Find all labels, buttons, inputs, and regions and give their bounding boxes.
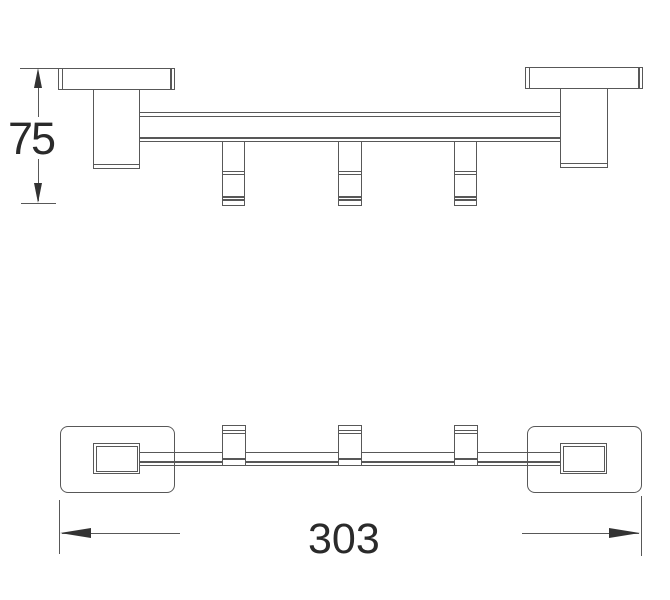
hook-band-line [223, 433, 245, 435]
front-hook-1 [222, 142, 246, 206]
plate-end-cap [529, 68, 531, 88]
rail-top-edge-line [139, 116, 561, 118]
hook-band-line [223, 430, 245, 432]
hook-band-line [455, 430, 477, 432]
dimension-arrow-up [34, 68, 42, 88]
hook-band-line [339, 174, 361, 176]
hook-band-line [339, 171, 361, 173]
hook-band-line [223, 199, 245, 201]
hook-band-line [223, 174, 245, 176]
hook-band-line [223, 458, 245, 460]
hook-band-line [339, 430, 361, 432]
technical-drawing-canvas: 75 [0, 0, 670, 600]
front-hook-3 [454, 142, 478, 206]
hook-band-line [339, 433, 361, 435]
plan-hook-1 [222, 425, 246, 467]
hook-band-line [223, 171, 245, 173]
post-bottom-edge-line [561, 163, 607, 165]
hook-band-line [339, 199, 361, 201]
post-section-inner-edge [563, 446, 605, 472]
front-rail-bar [139, 112, 561, 142]
dimension-arrow-left [60, 528, 91, 538]
post-section-inner-edge [96, 446, 138, 472]
hook-band-line [455, 458, 477, 460]
plan-post-section-right [560, 443, 607, 474]
extension-line-left [59, 500, 61, 554]
hook-band-line [455, 433, 477, 435]
width-dimension-value: 303 [308, 518, 380, 561]
front-wall-plate-left [58, 68, 175, 90]
hook-band-line [339, 196, 361, 198]
plan-post-section-left [93, 443, 140, 474]
post-bottom-edge-line [94, 164, 139, 166]
hook-band-line [455, 199, 477, 201]
plan-hook-2 [338, 425, 362, 467]
front-mounting-post-left [93, 90, 140, 169]
plan-hook-3 [454, 425, 478, 467]
hook-band-line [455, 174, 477, 176]
height-dimension-value: 75 [8, 116, 54, 161]
plate-end-cap [170, 69, 172, 89]
dimension-arrow-right [609, 528, 640, 538]
plate-end-cap [638, 68, 640, 88]
front-hook-2 [338, 142, 362, 206]
hook-band-line [455, 196, 477, 198]
hook-band-line [339, 458, 361, 460]
plate-end-cap [62, 69, 64, 89]
rail-bottom-edge-line [139, 137, 561, 139]
front-mounting-post-right [560, 89, 608, 168]
extension-line-right [641, 496, 643, 556]
hook-band-line [223, 196, 245, 198]
dimension-arrow-down [34, 183, 42, 203]
hook-band-line [455, 171, 477, 173]
front-wall-plate-right [525, 67, 643, 89]
